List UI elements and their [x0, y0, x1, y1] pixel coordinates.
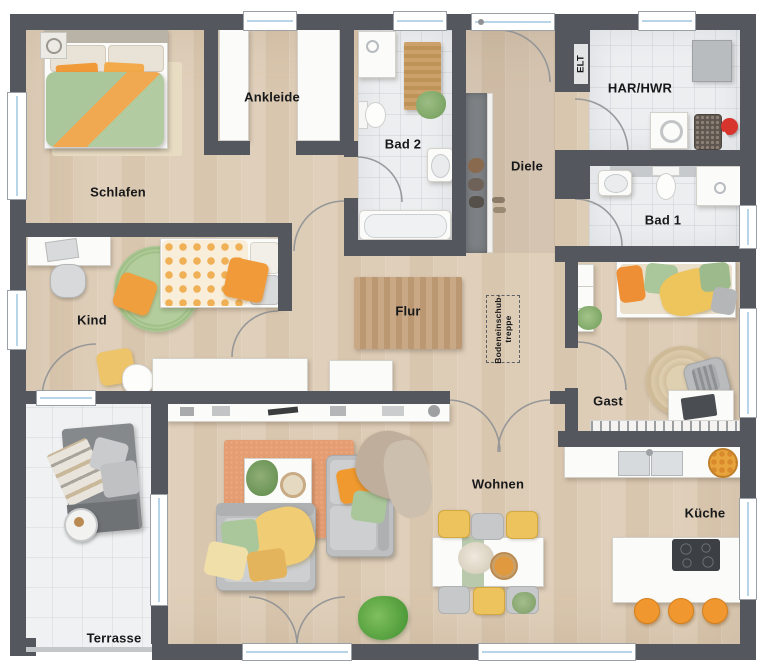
- room-label-har-hwr: HAR/HWR: [608, 81, 672, 96]
- floor-plan: Schlafen Ankleide Bad 2 Diele ELT HAR/HW…: [0, 0, 775, 672]
- room-label-ankleide: Ankleide: [244, 90, 300, 105]
- dining-chair-yellow-1: [438, 510, 470, 538]
- speaker-cone: [46, 38, 62, 54]
- hallway-sideboard: [329, 360, 393, 392]
- bathtub-inner: [364, 214, 447, 238]
- wall-kind-nook: [278, 223, 292, 311]
- laundry-basket: [694, 114, 722, 150]
- hall-wardrobe-side: [487, 93, 493, 253]
- bar-stool-3: [702, 598, 728, 624]
- room-label-flur: Flur: [395, 304, 420, 319]
- child-sideboard: [152, 358, 308, 392]
- shower-drain: [366, 40, 379, 53]
- har-cabinet: [692, 40, 732, 82]
- guest-pillow-orange: [616, 264, 647, 303]
- window-glass: [16, 294, 18, 346]
- dining-chair-gray-2: [438, 586, 470, 614]
- wall-bad1-gast: [555, 246, 742, 262]
- kitchen-faucet: [646, 449, 653, 456]
- sideboard-decor-6: [428, 405, 440, 417]
- hall-coat-2: [468, 178, 484, 191]
- wall-bad2-left-lower: [344, 198, 358, 244]
- wardrobe-left: [219, 29, 249, 141]
- hall-shoes-2: [493, 207, 506, 213]
- washing-machine-door: [660, 120, 683, 143]
- wall-diele-right-mid: [555, 150, 572, 199]
- hall-door-arc: [294, 201, 344, 251]
- label-bodeneinschubtreppe: Bodeneinschub- treppe: [493, 294, 513, 363]
- entrance-door-arc: [498, 30, 550, 82]
- sideboard-decor-2: [212, 406, 230, 416]
- window-gast: [739, 308, 757, 418]
- sink-bath2-basin: [431, 154, 450, 178]
- wall-schlafen-ankleide: [204, 30, 218, 145]
- wall-schlafen-kind: [10, 223, 292, 237]
- wall-bad2-diele: [452, 30, 466, 256]
- dining-chair-gray-1: [471, 513, 504, 540]
- bath1-door-arc: [575, 199, 622, 246]
- child-bed-blanket-orange: [222, 256, 269, 303]
- entrance-door-handle: [478, 19, 484, 25]
- dining-bowl: [490, 552, 518, 580]
- door-glass: [158, 498, 160, 602]
- window-ankleide: [243, 11, 297, 31]
- child-chair: [50, 264, 86, 298]
- toilet-bath1-bowl: [656, 173, 676, 200]
- dining-chair-yellow-3: [473, 587, 505, 615]
- window-bad2: [393, 11, 447, 31]
- room-label-bad1: Bad 1: [645, 213, 681, 228]
- room-label-bad2: Bad 2: [385, 137, 421, 152]
- window-glass: [16, 96, 18, 196]
- wall-kind-terrace-left: [18, 391, 36, 404]
- sideboard-decor-4: [330, 406, 346, 416]
- wall-gast-left-upper: [565, 262, 578, 348]
- kitchen-sink-right: [651, 451, 683, 476]
- coffee-table-plant: [246, 460, 278, 496]
- shower-bath1-drain: [714, 182, 726, 194]
- guest-laptop: [681, 394, 718, 421]
- wall-gast-kueche: [558, 431, 742, 447]
- door-panel-line: [475, 21, 551, 23]
- window-glass: [747, 502, 749, 596]
- door-wohnen-terrace: [150, 494, 168, 606]
- room-label-terrasse: Terrasse: [87, 631, 142, 646]
- wall-kind-terrace-right: [96, 391, 150, 404]
- bath2-door-arc: [358, 157, 402, 202]
- window-kueche: [739, 498, 757, 600]
- window-wohnen-south: [478, 643, 636, 661]
- fruit-bowl: [708, 448, 738, 478]
- door-glass: [40, 397, 92, 399]
- child-door-arc: [232, 311, 278, 357]
- window-bad1: [739, 205, 757, 249]
- har-door-arc: [575, 99, 628, 152]
- hall-shoes-1: [492, 197, 505, 203]
- window-glass: [482, 651, 632, 653]
- wall-ankleide-stub-left: [204, 141, 250, 155]
- room-label-elt: ELT: [576, 55, 587, 73]
- window-glass: [747, 312, 749, 414]
- living-sideboard: [166, 403, 450, 422]
- bar-stool-1: [634, 598, 660, 624]
- wall-bad2-left-upper: [344, 141, 358, 157]
- cooktop: [672, 539, 720, 571]
- wardrobe-right: [297, 29, 340, 141]
- door-kind-terrace: [36, 390, 96, 406]
- guest-pillow-gray: [710, 286, 738, 316]
- bar-stool-2: [668, 598, 694, 624]
- sofa-pillow-ochre: [246, 548, 288, 583]
- room-label-gast: Gast: [593, 394, 623, 409]
- sink-bath1-basin: [604, 174, 628, 193]
- wall-diele-right-upper: [555, 28, 572, 92]
- french-door-terrace: [242, 643, 352, 661]
- window-glass: [246, 651, 348, 653]
- sideboard-decor-5: [382, 406, 404, 416]
- terrace-pillow-2: [100, 460, 140, 499]
- dining-flowers: [458, 542, 494, 574]
- wall-flur-wohnen-stub: [550, 391, 575, 404]
- wall-har-bad1: [572, 150, 742, 166]
- living-double-door-left-arc: [448, 400, 500, 452]
- room-label-kueche: Küche: [685, 506, 726, 521]
- window-glass: [642, 20, 692, 22]
- room-label-kind: Kind: [77, 313, 107, 328]
- sideboard-decor-1: [180, 407, 194, 416]
- window-schlafen: [7, 92, 27, 200]
- room-label-diele: Diele: [511, 159, 543, 174]
- terrace-cup: [74, 517, 84, 527]
- wall-ankleide-bad2: [340, 30, 354, 143]
- window-kind: [7, 290, 27, 350]
- window-glass: [747, 209, 749, 245]
- kitchen-sink-left: [618, 451, 650, 476]
- window-har: [638, 11, 696, 31]
- dining-chair-yellow-2: [506, 511, 538, 539]
- room-label-wohnen: Wohnen: [472, 477, 524, 492]
- room-label-schlafen: Schlafen: [90, 185, 146, 200]
- terrace-french-door-left-arc: [249, 597, 297, 645]
- window-glass: [247, 20, 293, 22]
- wall-bad2-bottom: [344, 240, 466, 256]
- shower-bath2: [358, 31, 396, 78]
- bed-duvet: [46, 72, 164, 147]
- hall-bag: [469, 196, 484, 208]
- hall-wardrobe: [466, 93, 487, 253]
- guest-door-arc: [578, 342, 626, 390]
- wall-flur-wohnen: [150, 391, 450, 404]
- terrace-edge-line: [26, 647, 152, 652]
- wall-bad1-left: [572, 166, 590, 199]
- hall-coat-1: [468, 158, 484, 173]
- window-glass: [397, 20, 443, 22]
- living-double-door-right-arc: [498, 400, 550, 452]
- terrace-french-door-right-arc: [297, 597, 345, 645]
- coffee-table-tray: [280, 472, 306, 498]
- toilet-bath2-bowl: [365, 102, 386, 128]
